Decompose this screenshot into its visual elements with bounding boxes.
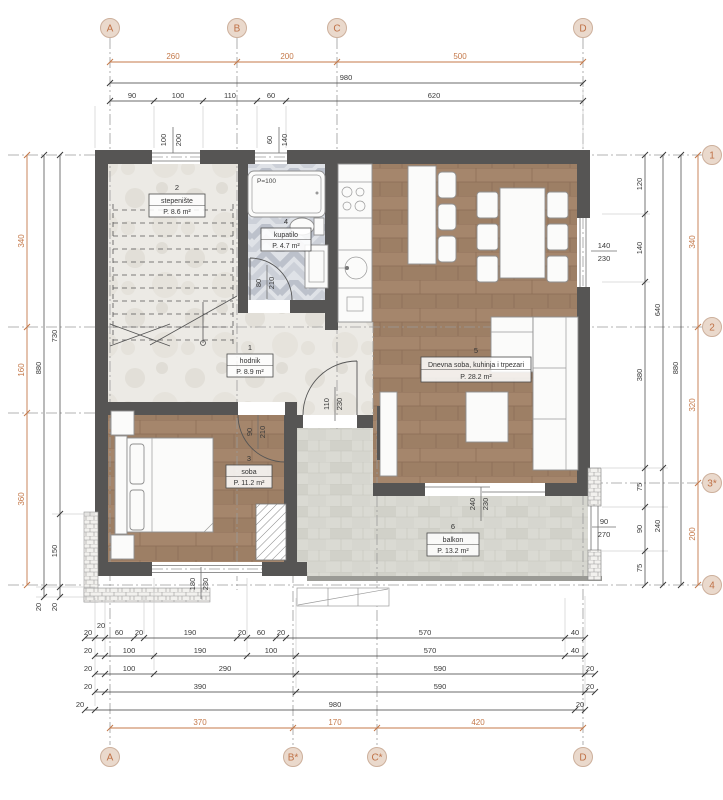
dim-label: 90 [635, 525, 644, 533]
grid-bubble-D-bottom: D [574, 748, 593, 767]
entry-steps [297, 588, 389, 606]
dim-label: 170 [328, 718, 342, 727]
dim-label: 90 [245, 428, 254, 436]
dim-label: 160 [17, 363, 26, 377]
dim-label: 570 [419, 628, 432, 637]
floor-plan-canvas: P=100 [0, 0, 723, 800]
dim-label: 360 [17, 492, 26, 506]
dim-label: 80 [254, 279, 263, 287]
chair [477, 256, 498, 282]
chair [547, 192, 568, 218]
dim-label: 880 [671, 362, 680, 375]
svg-text:P. 11.2 m²: P. 11.2 m² [234, 480, 266, 487]
dim-label: 200 [688, 527, 697, 541]
wall-stair-bath [238, 150, 248, 313]
grid-bubble-4-right: 4 [703, 576, 722, 595]
svg-text:soba: soba [241, 469, 256, 476]
dim-label: 590 [434, 682, 447, 691]
dim-label: 230 [598, 254, 611, 263]
dim-label: 90 [600, 517, 608, 526]
svg-text:stepenište: stepenište [161, 198, 193, 205]
dim-label: 60 [257, 628, 265, 637]
dim-label: 190 [184, 628, 197, 637]
dim-label: 75 [635, 483, 644, 491]
dim-label: 570 [424, 646, 437, 655]
svg-text:balkon: balkon [443, 537, 464, 544]
balcony-wall-brick-upper [588, 468, 601, 506]
dim-label: 60 [115, 628, 123, 637]
dim-label: 140 [635, 242, 644, 255]
dim-label: 500 [453, 52, 467, 61]
dim-label: 100 [265, 646, 278, 655]
svg-text:6: 6 [451, 522, 455, 531]
dim-label: 880 [34, 362, 43, 375]
dim-label: 100 [172, 91, 185, 100]
dim-label: 100 [123, 664, 136, 673]
svg-text:A: A [107, 24, 114, 35]
svg-text:P. 8.6 m²: P. 8.6 m² [163, 209, 191, 216]
svg-text:D: D [579, 753, 586, 764]
window-top-1 [152, 150, 200, 164]
dim-label: 370 [193, 718, 207, 727]
dim-label: 20 [84, 682, 92, 691]
dim-label: 980 [329, 700, 342, 709]
dim-label: 60 [265, 136, 274, 144]
nightstand [111, 535, 134, 559]
grid-bubble-2-right: 2 [703, 318, 722, 337]
pillow [130, 444, 144, 484]
dim-label: 20 [34, 603, 43, 611]
svg-text:B*: B* [288, 753, 299, 764]
window-top-2 [255, 150, 287, 164]
dim-label: 110 [322, 398, 331, 410]
grid-bubble-A-top: A [101, 19, 120, 38]
dim-label: 320 [688, 398, 697, 412]
grid-bubble-3-right: 3* [703, 474, 722, 493]
dim-label: 20 [50, 603, 59, 611]
dim-label: 620 [428, 91, 441, 100]
svg-text:P. 13.2 m²: P. 13.2 m² [437, 548, 469, 555]
dim-label: 60 [267, 91, 275, 100]
dim-label: 240 [653, 520, 662, 533]
svg-text:1: 1 [709, 151, 715, 162]
dim-label: 200 [174, 134, 183, 147]
coffee-table [466, 392, 508, 442]
svg-text:kupatilo: kupatilo [274, 232, 298, 239]
nightstand [111, 411, 134, 435]
dim-label: 390 [194, 682, 207, 691]
dim-label: 40 [571, 646, 579, 655]
dim-label: 20 [84, 664, 92, 673]
floor-plan-drawing: P=100 [0, 0, 723, 800]
balcony-parapet [307, 576, 602, 581]
svg-text:4: 4 [284, 217, 288, 226]
svg-text:P. 28.2 m²: P. 28.2 m² [460, 374, 492, 381]
svg-text:Dnevna soba, kuhinja i trpezar: Dnevna soba, kuhinja i trpezari [428, 362, 525, 369]
svg-text:1: 1 [248, 343, 252, 352]
svg-text:4: 4 [709, 581, 715, 592]
pillow [130, 490, 144, 530]
dim-label: 110 [224, 91, 236, 100]
dim-label: 640 [653, 304, 662, 317]
svg-text:C: C [333, 24, 340, 35]
dim-label: 240 [468, 498, 477, 511]
dim-label: 730 [50, 330, 59, 343]
dim-label: 140 [598, 241, 611, 250]
grid-bubble-D-top: D [574, 19, 593, 38]
chair [547, 256, 568, 282]
bathroom-sink [305, 245, 328, 288]
dim-label: 340 [688, 235, 697, 249]
grid-bubble-B-top: B [228, 19, 247, 38]
svg-text:5: 5 [474, 346, 478, 355]
dim-label: 380 [635, 369, 644, 382]
dim-label: 270 [598, 530, 611, 539]
dim-label: 150 [50, 545, 59, 558]
svg-text:3: 3 [247, 454, 251, 463]
svg-text:hodnik: hodnik [240, 358, 261, 365]
svg-text:C*: C* [371, 753, 382, 764]
dim-label: 210 [267, 277, 276, 290]
dim-label: 100 [159, 134, 168, 147]
dim-label: 230 [335, 398, 344, 411]
balcony-slider [425, 483, 545, 496]
dim-label: 200 [280, 52, 294, 61]
dim-label: 20 [76, 700, 84, 709]
dim-label: 290 [219, 664, 232, 673]
svg-text:3*: 3* [707, 479, 717, 490]
dim-label: 340 [17, 234, 26, 248]
dim-label: 40 [571, 628, 579, 637]
svg-text:2: 2 [175, 183, 179, 192]
tv-stand [377, 392, 397, 476]
dim-label: 190 [194, 646, 207, 655]
chair [547, 224, 568, 250]
wardrobe [256, 504, 286, 560]
grid-bubble-C-top: C [328, 19, 347, 38]
stool [438, 236, 456, 262]
kitchen-island [408, 166, 456, 264]
dim-label: 210 [258, 426, 267, 439]
svg-text:B: B [234, 24, 241, 35]
svg-text:P. 4.7 m²: P. 4.7 m² [272, 243, 300, 250]
dim-label: 120 [635, 178, 644, 191]
dim-label: 20 [84, 646, 92, 655]
stool [438, 204, 456, 230]
dim-label: 20 [97, 621, 105, 630]
svg-text:P. 8.9 m²: P. 8.9 m² [236, 369, 264, 376]
bathtub-label: P=100 [257, 178, 276, 185]
dim-label: 260 [166, 52, 180, 61]
dim-label: 590 [434, 664, 447, 673]
grid-bubble-A-bottom: A [101, 748, 120, 767]
dim-label: 230 [201, 578, 210, 591]
dim-label: 420 [471, 718, 485, 727]
svg-text:D: D [579, 24, 586, 35]
grid-bubble-B-bottom: B* [284, 748, 303, 767]
balcony-window-lines [591, 506, 598, 550]
dim-label: 90 [128, 91, 136, 100]
kitchen-counter [338, 164, 372, 322]
wall-right [577, 150, 590, 496]
chair [477, 224, 498, 250]
headboard [115, 436, 127, 534]
bathtub: P=100 [248, 171, 325, 217]
grid-bubble-C-bottom: C* [368, 748, 387, 767]
dining-table [500, 188, 545, 278]
dim-label: 980 [340, 73, 353, 82]
svg-text:A: A [107, 753, 114, 764]
window-right [577, 218, 590, 287]
dining-set [477, 188, 568, 282]
stool [438, 172, 456, 198]
svg-text:2: 2 [709, 323, 715, 334]
grid-bubble-1-right: 1 [703, 146, 722, 165]
balcony-wall-brick-lower [588, 550, 601, 580]
dim-label: 140 [280, 134, 289, 147]
window-bedroom [152, 562, 262, 576]
balcony-floor-arm [297, 428, 373, 576]
chair [477, 192, 498, 218]
dim-label: 180 [188, 578, 197, 591]
dim-label: 230 [481, 498, 490, 511]
dim-label: 75 [635, 564, 644, 572]
dim-label: 100 [123, 646, 136, 655]
